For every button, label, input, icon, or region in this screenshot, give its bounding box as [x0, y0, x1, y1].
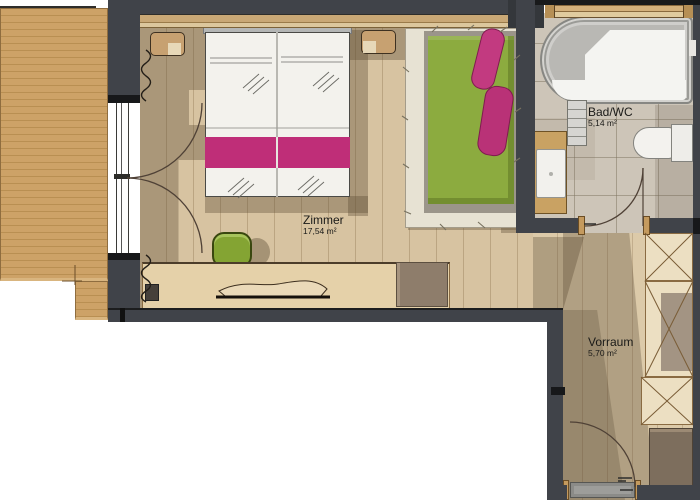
bath-door-frame-right [643, 216, 650, 235]
hall-cabinet [649, 428, 693, 487]
outside-mask [533, 322, 547, 500]
wall-vorraum-notch [551, 387, 565, 395]
wall-bath-left [516, 0, 535, 233]
label-bad: Bad/WC 5,14 m² [588, 106, 633, 128]
shadow-bed-bottom [205, 196, 368, 213]
entry-door-leaf [570, 482, 635, 498]
wardrobe-section-2-panel [661, 293, 692, 371]
wall-right-cap [693, 0, 700, 5]
bath-window-sill-left [545, 5, 555, 18]
wall-left-upper [108, 0, 140, 103]
wardrobe-section-3 [641, 377, 693, 425]
label-vorraum-name: Vorraum [588, 336, 633, 349]
toilet-bowl [633, 127, 675, 159]
bed-runner-gap [276, 137, 278, 168]
wall-vorraum-bottom-left [547, 485, 567, 500]
toilet-cistern [671, 124, 693, 162]
wall-bottom-zimmer [108, 308, 563, 322]
bath-window-band [545, 5, 693, 18]
balcony-deck [0, 8, 108, 281]
washbasin-drain [549, 172, 553, 176]
desk-phone-box [145, 284, 159, 301]
shadow-bed-right [348, 30, 368, 216]
label-bad-area: 5,14 m² [588, 119, 633, 128]
desk-cabinet-box [396, 262, 448, 307]
label-zimmer-area: 17,54 m² [303, 227, 344, 236]
wall-left-upper-cap [108, 95, 140, 103]
nightstand-left-tray [168, 43, 181, 55]
window-band-top [140, 14, 510, 28]
bed-divider [276, 32, 278, 197]
wall-top [108, 0, 535, 14]
label-zimmer-name: Zimmer [303, 214, 344, 227]
bath-window-sill-right [683, 5, 693, 18]
wall-vorraum-bottom-right [637, 485, 700, 500]
balcony-deck-step [75, 281, 108, 320]
wall-bath-bottom-left [516, 218, 583, 233]
wall-left-lower-cap [108, 253, 140, 260]
nightstand-right-tray [363, 41, 376, 53]
wardrobe-section-1 [645, 233, 693, 281]
label-zimmer: Zimmer 17,54 m² [303, 214, 344, 236]
label-bad-name: Bad/WC [588, 106, 633, 119]
wall-bath-bottom-right [649, 218, 693, 233]
wall-bottom-tick [120, 308, 125, 322]
wall-right-joint [693, 218, 700, 234]
bath-door-frame-left [578, 216, 585, 235]
wall-vorraum-left [547, 310, 563, 500]
bathtub-basin-white-2 [552, 80, 686, 100]
floor-plan: Zimmer 17,54 m² Bad/WC 5,14 m² Vorraum 5… [0, 0, 700, 500]
wall-right [693, 0, 700, 500]
wall-right-niche [689, 40, 696, 56]
label-vorraum: Vorraum 5,70 m² [588, 336, 633, 358]
towel-radiator [567, 100, 587, 146]
label-vorraum-area: 5,70 m² [588, 349, 633, 358]
balcony-door-transom [114, 174, 130, 179]
